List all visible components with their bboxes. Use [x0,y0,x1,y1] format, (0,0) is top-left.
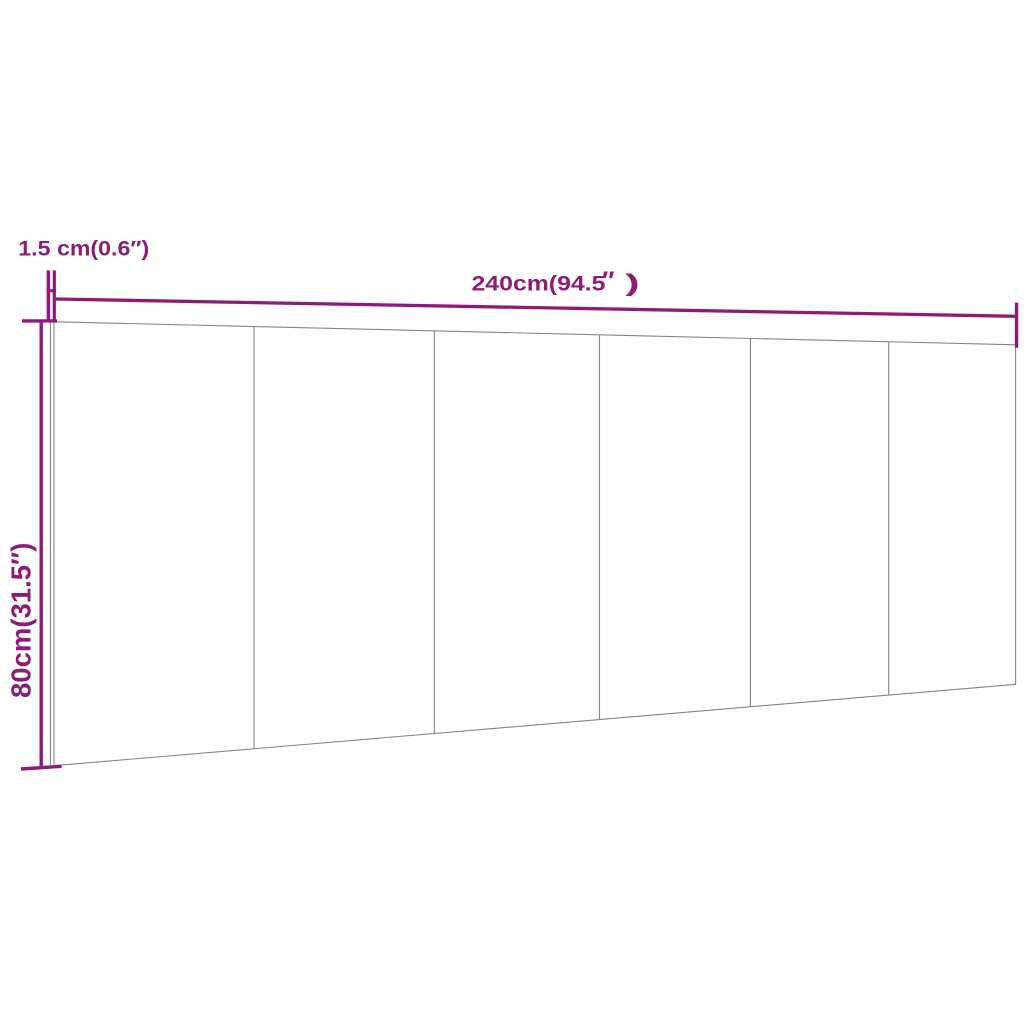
svg-text:240cm(94.5: 240cm(94.5 [472,271,606,295]
svg-text:″: ″ [602,265,614,295]
svg-text:80cm(31.5″): 80cm(31.5″) [6,543,37,698]
svg-text:): ) [625,270,639,297]
svg-text:1.5 cm(0.6″): 1.5 cm(0.6″) [18,236,149,260]
